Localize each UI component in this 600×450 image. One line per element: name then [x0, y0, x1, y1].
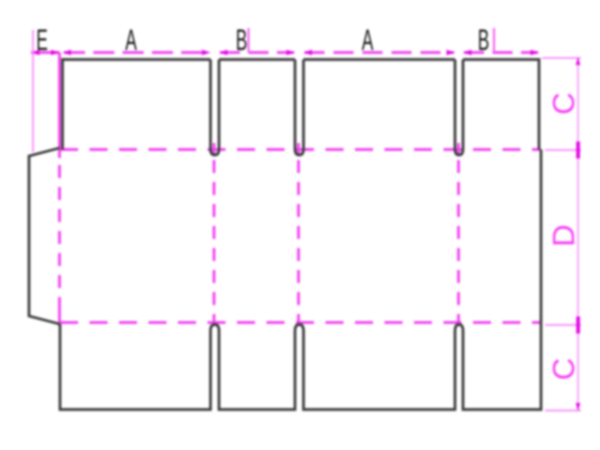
svg-text:D: D [546, 224, 581, 246]
svg-text:B: B [478, 24, 490, 57]
svg-text:B: B [236, 24, 248, 57]
svg-text:C: C [546, 92, 581, 114]
svg-text:A: A [362, 24, 374, 57]
svg-text:C: C [546, 358, 581, 380]
svg-text:E: E [36, 24, 48, 57]
svg-text:A: A [125, 24, 137, 57]
